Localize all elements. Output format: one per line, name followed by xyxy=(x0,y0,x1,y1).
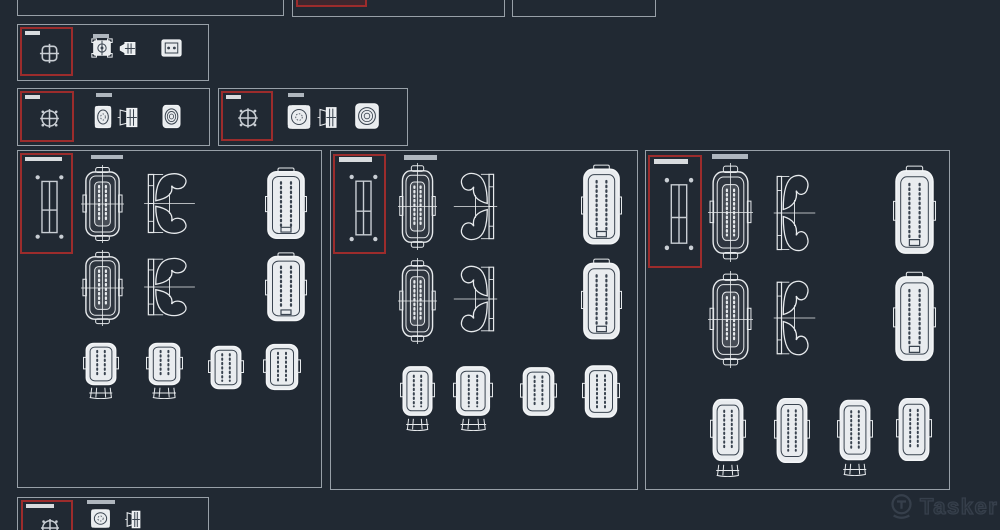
block-label-redacted xyxy=(654,159,688,164)
panel-connector-family-1[interactable] xyxy=(17,150,322,488)
watermark: Tasker xyxy=(888,493,998,520)
housing-small[interactable] xyxy=(263,342,301,392)
group-label-redacted xyxy=(96,93,112,97)
housing-small[interactable] xyxy=(582,363,620,420)
group-label-redacted xyxy=(288,93,304,97)
selected-block-red-box[interactable] xyxy=(221,91,273,141)
block-label-redacted xyxy=(25,95,40,99)
lock-side-profile[interactable] xyxy=(772,167,817,259)
panel-top-partial-left[interactable] xyxy=(17,0,284,16)
panel-top-partial-middle[interactable] xyxy=(292,0,505,17)
rect-2col-block-icon xyxy=(657,165,701,263)
housing-rear-view[interactable] xyxy=(581,164,622,249)
connector-side-view[interactable] xyxy=(118,40,138,57)
housing-top-view[interactable] xyxy=(708,271,753,368)
housing-with-stand[interactable] xyxy=(146,341,183,399)
housing-small[interactable] xyxy=(520,365,557,418)
round-connector-side-view[interactable] xyxy=(124,509,143,530)
lock-side-profile[interactable] xyxy=(452,166,499,247)
watermark-label: Tasker xyxy=(920,494,998,520)
selected-block-red-box[interactable] xyxy=(648,155,702,268)
housing-top-view[interactable] xyxy=(708,163,753,262)
panel-top-partial-right[interactable] xyxy=(512,0,656,17)
housing-with-stand[interactable] xyxy=(837,397,873,476)
housing-small[interactable] xyxy=(774,395,810,466)
housing-top-view[interactable] xyxy=(398,163,437,250)
housing-with-stand[interactable] xyxy=(400,364,435,431)
round-connector-side-view[interactable] xyxy=(316,105,340,130)
block-label-redacted xyxy=(339,157,372,162)
block-label-redacted xyxy=(226,95,241,99)
block-label-redacted xyxy=(25,31,40,35)
group-label-redacted xyxy=(712,154,748,159)
housing-with-stand[interactable] xyxy=(710,396,746,477)
round-connector-back-view[interactable] xyxy=(353,101,381,131)
panel-connector-family-3[interactable] xyxy=(645,150,950,490)
round-connector-front-view[interactable] xyxy=(89,507,112,530)
housing-with-stand[interactable] xyxy=(83,341,119,399)
cad-canvas: Tasker xyxy=(0,0,1000,530)
panel-connector-group-d[interactable] xyxy=(17,497,209,530)
selected-block-red-box[interactable] xyxy=(21,500,73,530)
housing-top-view[interactable] xyxy=(81,250,124,326)
circle-target-block-icon xyxy=(235,105,261,131)
housing-with-stand[interactable] xyxy=(453,364,493,431)
circle-target-block-icon xyxy=(38,516,62,530)
connector-front-view[interactable] xyxy=(90,38,114,58)
rect-2col-block-icon xyxy=(342,163,385,253)
lock-side-profile[interactable] xyxy=(142,252,197,322)
housing-rear-view[interactable] xyxy=(581,258,622,344)
housing-top-view[interactable] xyxy=(81,165,124,243)
lock-side-profile[interactable] xyxy=(772,273,817,363)
housing-small[interactable] xyxy=(208,344,244,391)
group-label-redacted xyxy=(91,155,123,159)
panel-connector-group-c[interactable] xyxy=(218,88,408,146)
round-connector-front-view[interactable] xyxy=(285,102,313,132)
selected-block-red-box[interactable] xyxy=(20,153,73,254)
selected-block-red-box[interactable] xyxy=(333,154,386,254)
rect-2col-block-icon xyxy=(28,164,71,250)
housing-small[interactable] xyxy=(896,395,932,464)
connector-back-view[interactable] xyxy=(159,38,184,58)
group-label-redacted xyxy=(87,500,115,504)
selected-block-red-box[interactable] xyxy=(20,27,73,76)
circle-target-block-icon xyxy=(37,106,62,131)
housing-top-view[interactable] xyxy=(398,258,437,344)
block-label-redacted xyxy=(25,157,62,161)
housing-rear-view[interactable] xyxy=(893,271,936,366)
group-label-redacted xyxy=(404,155,437,160)
block-label-redacted xyxy=(26,504,54,508)
selected-block-red-box[interactable] xyxy=(20,91,74,142)
housing-rear-view[interactable] xyxy=(265,167,307,243)
panel-connector-group-b[interactable] xyxy=(17,88,210,146)
round-connector-back-view[interactable] xyxy=(161,103,182,130)
panel-connector-family-2[interactable] xyxy=(330,150,638,490)
housing-rear-view[interactable] xyxy=(265,252,307,325)
round-connector-front-view[interactable] xyxy=(93,103,113,131)
lock-side-profile[interactable] xyxy=(452,259,499,339)
lock-side-profile[interactable] xyxy=(142,167,197,240)
tasker-logo-icon xyxy=(888,493,915,520)
round-connector-side-view[interactable] xyxy=(116,106,141,129)
panel-connector-group-a[interactable] xyxy=(17,24,209,81)
grid-square-block-icon xyxy=(38,42,61,65)
selected-block-red-box[interactable] xyxy=(296,0,367,7)
housing-rear-view[interactable] xyxy=(893,165,936,259)
